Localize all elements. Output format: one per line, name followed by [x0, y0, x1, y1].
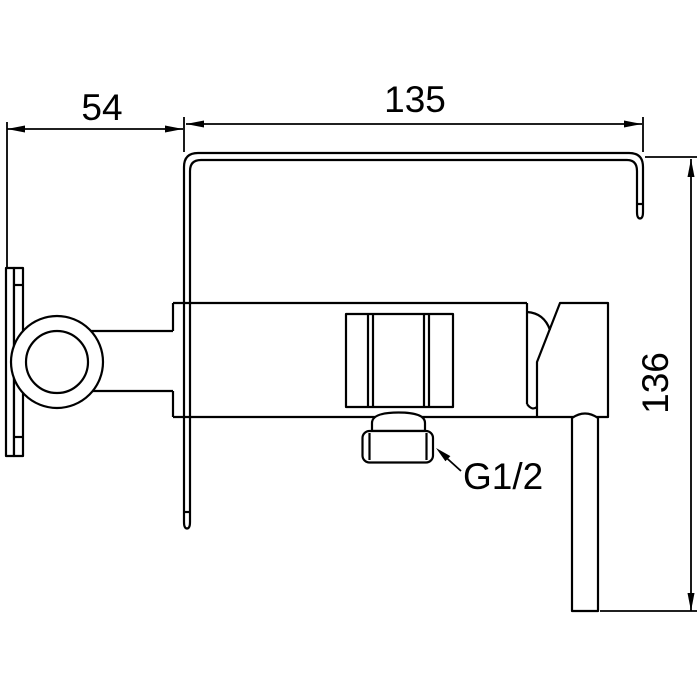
shower-mixer-drawing: 54 135 136 G1/2 — [0, 0, 700, 700]
dimension-135: 135 — [186, 79, 643, 152]
dim-136-label: 136 — [635, 352, 676, 414]
lever-bottom-arc — [527, 404, 537, 408]
thread-callout: G1/2 — [436, 448, 543, 497]
mixer-body — [173, 303, 537, 417]
thread-spec-label: G1/2 — [463, 456, 543, 497]
arrowhead-right — [624, 121, 642, 128]
mounting-circle — [11, 316, 103, 408]
technical-drawing-page: 54 135 136 G1/2 — [0, 0, 700, 700]
arrowhead-right — [165, 126, 183, 133]
dim-54-label: 54 — [81, 87, 122, 128]
lever-pivot-arc — [527, 312, 550, 330]
outlet-nut — [363, 413, 434, 463]
arrowhead-down — [688, 593, 695, 611]
arrowhead-left — [7, 126, 25, 133]
hand-shower-tube — [572, 414, 598, 612]
arrowhead-up — [688, 159, 695, 177]
dimension-54: 54 — [7, 87, 184, 267]
lever-handle — [527, 303, 608, 417]
dimension-136: 136 — [600, 157, 697, 611]
arrowhead-left — [186, 121, 204, 128]
dim-135-label: 135 — [384, 79, 446, 120]
